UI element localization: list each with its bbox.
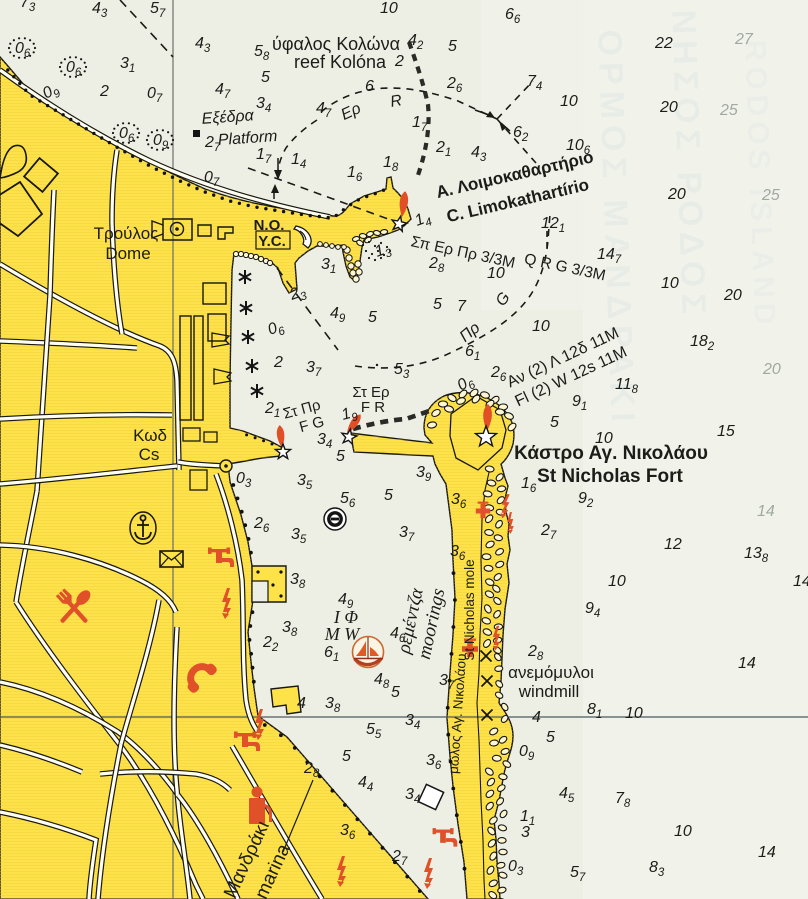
svg-text:5: 5	[448, 38, 457, 55]
svg-text:reef Kolóna: reef Kolóna	[294, 52, 387, 72]
svg-text:5: 5	[336, 448, 345, 465]
svg-text:14: 14	[738, 655, 756, 672]
svg-text:5: 5	[391, 684, 400, 701]
svg-text:14: 14	[758, 844, 776, 861]
svg-text:ύφαλος Κολώνα: ύφαλος Κολώνα	[272, 34, 400, 54]
svg-text:20: 20	[659, 99, 678, 116]
svg-text:F R: F R	[361, 399, 385, 416]
svg-text:Cs: Cs	[139, 445, 160, 464]
svg-text:7: 7	[457, 298, 467, 315]
svg-text:Κάστρο Αγ. Νικολάου: Κάστρο Αγ. Νικολάου	[514, 443, 708, 464]
svg-text:4: 4	[532, 709, 541, 726]
svg-text:5: 5	[433, 296, 442, 313]
svg-text:10: 10	[560, 93, 578, 110]
svg-text:Ν.Ο.: Ν.Ο.	[254, 217, 285, 234]
svg-text:3: 3	[521, 824, 530, 841]
svg-text:St Nicholas Fort: St Nicholas Fort	[537, 466, 683, 487]
svg-text:5: 5	[342, 748, 351, 765]
svg-text:20: 20	[723, 287, 742, 304]
svg-text:12: 12	[664, 536, 682, 553]
svg-text:2: 2	[99, 83, 109, 100]
svg-text:5: 5	[550, 414, 559, 431]
svg-text:10: 10	[674, 823, 692, 840]
svg-text:5: 5	[546, 729, 555, 746]
svg-text:5: 5	[261, 69, 270, 86]
svg-text:St Nicholas mole: St Nicholas mole	[462, 559, 477, 660]
svg-text:5: 5	[368, 309, 377, 326]
svg-text:22: 22	[654, 35, 673, 52]
svg-text:25: 25	[761, 187, 780, 204]
svg-text:2: 2	[273, 354, 283, 371]
svg-text:14: 14	[793, 573, 808, 590]
svg-text:2: 2	[394, 53, 404, 70]
svg-text:20: 20	[762, 361, 781, 378]
svg-text:10: 10	[661, 275, 679, 292]
svg-text:25: 25	[719, 102, 738, 119]
svg-text:14: 14	[757, 503, 775, 520]
svg-text:20: 20	[667, 186, 686, 203]
svg-text:Τρούλος: Τρούλος	[94, 224, 159, 243]
svg-text:15: 15	[717, 423, 735, 440]
svg-text:windmill: windmill	[518, 682, 579, 701]
svg-text:10: 10	[380, 0, 398, 17]
svg-text:Μ W: Μ W	[324, 624, 361, 644]
svg-text:Κωδ: Κωδ	[133, 426, 167, 445]
svg-text:27: 27	[734, 31, 754, 48]
svg-text:6: 6	[365, 78, 374, 95]
svg-text:10: 10	[608, 573, 626, 590]
svg-text:10: 10	[532, 318, 550, 335]
svg-text:4: 4	[297, 695, 306, 712]
svg-text:5: 5	[384, 487, 393, 504]
svg-text:Y.C.: Y.C.	[258, 233, 286, 250]
svg-text:ανεμόμυλοι: ανεμόμυλοι	[508, 663, 594, 682]
svg-text:Dome: Dome	[105, 244, 150, 263]
svg-text:10: 10	[625, 705, 643, 722]
